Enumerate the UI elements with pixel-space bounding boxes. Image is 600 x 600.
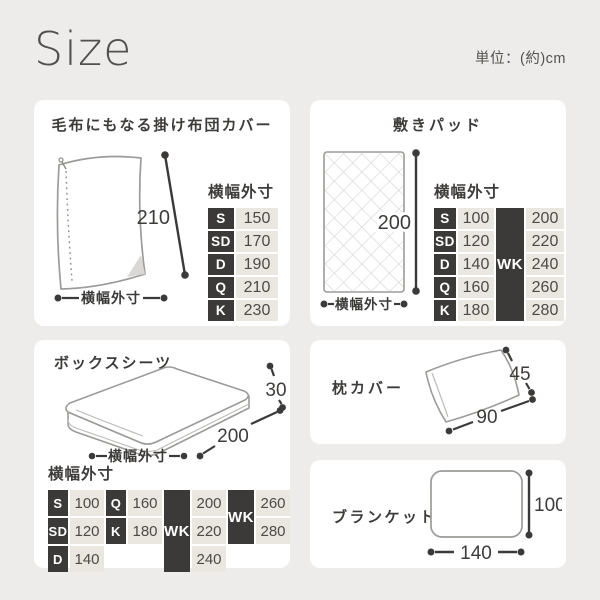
svg-text:200: 200 <box>378 212 411 234</box>
boxsheet-size-table: 横幅外寸 S 100 SD 120 D 140 Q 160 K 180 WK 2… <box>48 462 290 572</box>
size-label: Q <box>208 277 234 298</box>
boxsheet-table-header: 横幅外寸 <box>48 462 290 484</box>
svg-text:横幅外寸: 横幅外寸 <box>335 296 393 312</box>
svg-text:横幅外寸: 横幅外寸 <box>81 290 141 306</box>
size-label: S <box>208 208 234 229</box>
duvet-table-header: 横幅外寸 <box>208 180 278 202</box>
size-value: 150 <box>236 208 278 229</box>
size-value: 240 <box>526 254 564 275</box>
size-value: 260 <box>256 490 290 516</box>
blanket-illustration: 100 140 <box>398 466 562 564</box>
pillow-outline <box>426 350 519 422</box>
size-label: K <box>434 300 456 321</box>
size-label: K <box>106 518 126 544</box>
svg-text:45: 45 <box>509 364 530 385</box>
size-label: Q <box>106 490 126 516</box>
duvet-illustration: 210 横幅外寸 <box>44 138 202 312</box>
boxsheet-height-measurement: 30 <box>265 363 286 411</box>
size-value: 120 <box>458 231 494 252</box>
size-value: 120 <box>70 518 104 544</box>
size-value: 220 <box>192 518 226 544</box>
duvet-size-table: 横幅外寸 S 150 SD 170 D 190 Q 210 K 230 <box>208 180 278 321</box>
unit-note: 単位：(約)cm <box>475 47 566 68</box>
size-label: D <box>208 254 234 275</box>
size-value: 100 <box>70 490 104 516</box>
boxsheet-illustration: 30 200 横幅外寸 <box>46 360 288 464</box>
duvet-width-measurement: 横幅外寸 <box>55 290 168 306</box>
blanket-height-measurement: 100 <box>526 470 563 539</box>
duvet-card-title: 毛布にもなる掛け布団カバー <box>34 114 290 135</box>
pad-card-title: 敷きパッド <box>310 114 566 135</box>
size-value: 180 <box>128 518 162 544</box>
mattress-pad-card: 敷きパッド 200 横幅外寸 横幅外寸 S 100 WK 200 <box>310 100 566 326</box>
blanket-card: ブランケット 100 140 <box>310 460 566 568</box>
size-label: D <box>48 546 68 572</box>
svg-text:90: 90 <box>476 407 497 428</box>
duvet-length-measurement: 210 <box>137 151 189 279</box>
svg-text:30: 30 <box>265 380 286 401</box>
size-value: 180 <box>458 300 494 321</box>
size-value: 200 <box>192 490 226 516</box>
size-value: 240 <box>192 546 226 572</box>
size-label: K <box>208 300 234 321</box>
size-value: 160 <box>128 490 162 516</box>
box-sheet-card: ボックスシーツ 30 200 横幅外寸 <box>34 340 290 568</box>
size-value: 210 <box>236 277 278 298</box>
page-title: Size <box>34 22 132 76</box>
size-label: D <box>434 254 456 275</box>
size-value: 200 <box>526 208 564 229</box>
pad-width-measurement: 横幅外寸 <box>321 296 408 312</box>
size-label: Q <box>434 277 456 298</box>
size-value: 280 <box>526 300 564 321</box>
svg-text:200: 200 <box>217 426 249 447</box>
pad-table-header: 横幅外寸 <box>434 180 564 202</box>
size-label: SD <box>434 231 456 252</box>
size-value: 160 <box>458 277 494 298</box>
svg-text:210: 210 <box>137 207 170 229</box>
size-value: 170 <box>236 231 278 252</box>
svg-text:100: 100 <box>534 495 562 516</box>
wk-size-label: WK <box>228 490 254 544</box>
pillow-illustration: 45 90 <box>402 342 564 442</box>
size-value: 100 <box>458 208 494 229</box>
pillow-cover-card: 枕カバー 45 90 <box>310 340 566 444</box>
size-value: 280 <box>256 518 290 544</box>
size-label: S <box>48 490 68 516</box>
blanket-outline <box>431 471 522 537</box>
size-label: SD <box>48 518 68 544</box>
svg-text:140: 140 <box>460 543 492 564</box>
size-value: 230 <box>236 300 278 321</box>
blanket-width-measurement: 140 <box>428 543 525 564</box>
size-value: 260 <box>526 277 564 298</box>
pad-illustration: 200 横幅外寸 <box>316 144 428 314</box>
size-label: S <box>434 208 456 229</box>
wk-size-label: WK <box>496 208 524 321</box>
duvet-zipper-ring-icon <box>59 158 63 162</box>
duvet-cover-card: 毛布にもなる掛け布団カバー 210 横幅外寸 横幅外寸 S 150 SD <box>34 100 290 326</box>
pad-size-table: 横幅外寸 S 100 WK 200 SD 120 220 D 140 240 Q… <box>434 180 564 321</box>
size-value: 190 <box>236 254 278 275</box>
pillow-card-title: 枕カバー <box>332 377 404 398</box>
wk-size-label: WK <box>164 490 190 572</box>
size-label: SD <box>208 231 234 252</box>
size-value: 140 <box>458 254 494 275</box>
size-value: 220 <box>526 231 564 252</box>
size-value: 140 <box>70 546 104 572</box>
